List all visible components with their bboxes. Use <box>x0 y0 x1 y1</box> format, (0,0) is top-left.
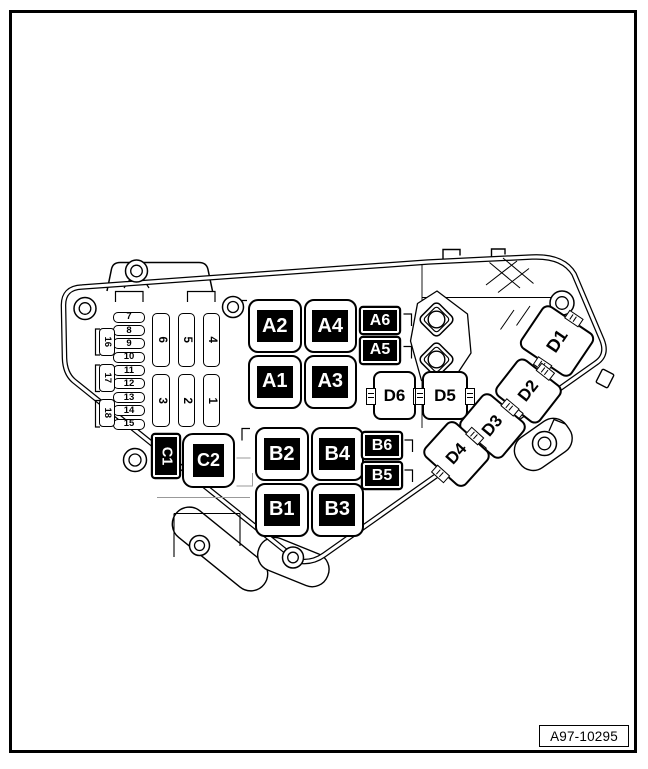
page-border-frame <box>9 10 637 753</box>
figure-code-label: A97-10295 <box>539 725 629 747</box>
page: A2 A4 A1 A3 A6 A5 B2 B4 B1 B3 B6 B5 C1 C… <box>0 0 648 769</box>
